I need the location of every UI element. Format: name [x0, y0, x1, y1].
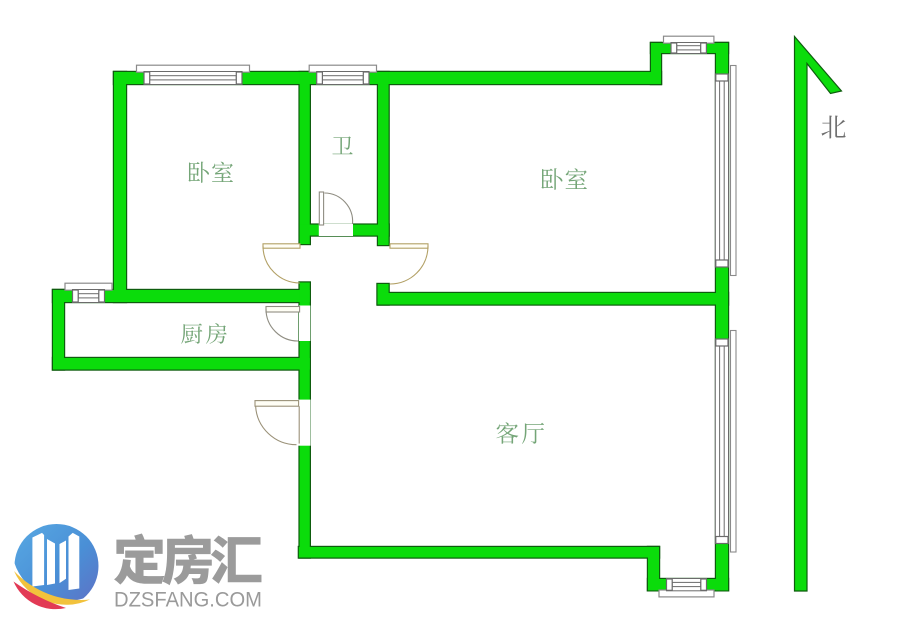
svg-text:DZSFANG.COM: DZSFANG.COM [114, 589, 262, 612]
